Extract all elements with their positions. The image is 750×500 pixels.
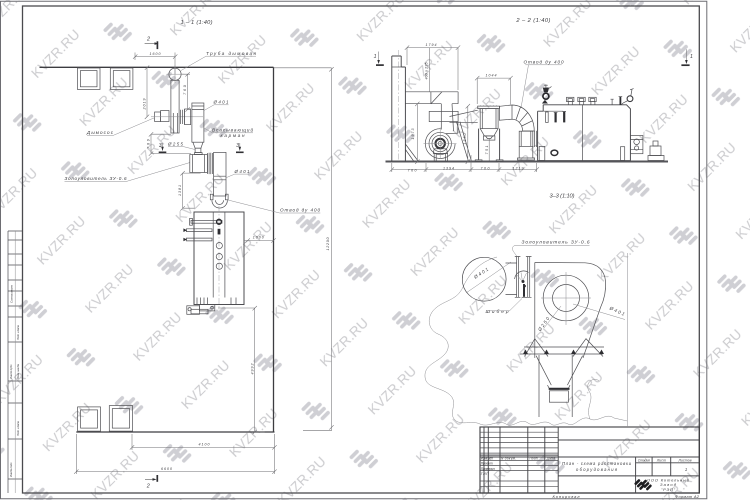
- svg-text:Ø255: Ø255: [167, 141, 184, 146]
- svg-text:Инв.№ подл.: Инв.№ подл.: [9, 462, 13, 477]
- svg-text:751: 751: [485, 146, 489, 155]
- svg-text:3: 3: [236, 143, 239, 149]
- svg-text:План - схема расстановки: План - схема расстановки: [562, 461, 632, 466]
- svg-text:Золоуловитель ЗУ-0.6: Золоуловитель ЗУ-0.6: [522, 240, 590, 246]
- svg-text:1394: 1394: [443, 166, 454, 170]
- svg-text:Дымосос: Дымосос: [86, 130, 114, 135]
- svg-text:"РЭП": "РЭП": [661, 487, 676, 492]
- svg-text:Листов: Листов: [678, 458, 692, 462]
- svg-text:ГИП: ГИП: [481, 472, 490, 476]
- svg-text:Инв.№ дубл.: Инв.№ дубл.: [9, 364, 13, 379]
- svg-text:1973: 1973: [411, 129, 415, 140]
- svg-text:Дата: Дата: [546, 456, 556, 460]
- svg-text:Шибер: Шибер: [486, 309, 509, 315]
- svg-text:700: 700: [481, 166, 490, 170]
- svg-text:Формат А2: Формат А2: [675, 494, 700, 499]
- svg-text:400 х 235: 400 х 235: [424, 63, 428, 80]
- svg-text:4992: 4992: [250, 364, 254, 375]
- svg-text:Согласовано: Согласовано: [10, 285, 14, 303]
- svg-text:Отвод ду 400: Отвод ду 400: [524, 59, 564, 64]
- svg-text:1219: 1219: [513, 166, 524, 170]
- svg-text:1044: 1044: [486, 74, 497, 78]
- svg-text:Ø401: Ø401: [213, 100, 230, 105]
- svg-text:1: 1: [374, 54, 377, 60]
- svg-text:1: 1: [690, 54, 693, 60]
- svg-text:Подп. и дата: Подп. и дата: [16, 421, 20, 436]
- svg-text:12200: 12200: [326, 238, 330, 251]
- svg-text:1000: 1000: [253, 236, 264, 240]
- svg-text:1550: 1550: [463, 134, 467, 145]
- svg-text:N докум.: N докум.: [501, 456, 516, 460]
- svg-text:1: 1: [685, 467, 687, 472]
- svg-text:4100: 4100: [199, 443, 210, 447]
- svg-text:карман: карман: [221, 133, 245, 138]
- svg-text:Подп.: Подп.: [530, 456, 539, 460]
- svg-text:Лист: Лист: [485, 456, 493, 460]
- svg-text:Взам. инв.№: Взам. инв.№: [16, 364, 20, 379]
- svg-text:Проект: Проект: [481, 462, 493, 466]
- svg-text:Отвод ду 400: Отвод ду 400: [280, 207, 320, 212]
- svg-text:2: 2: [146, 37, 150, 43]
- svg-text:2: 2: [146, 484, 150, 490]
- svg-text:3: 3: [159, 143, 162, 149]
- svg-text:1 – 1 (1:40): 1 – 1 (1:40): [181, 20, 213, 26]
- svg-text:709: 709: [147, 139, 151, 149]
- svg-text:оборудования: оборудования: [576, 467, 618, 472]
- svg-text:Золоуловитель ЗУ-0.6: Золоуловитель ЗУ-0.6: [65, 176, 127, 181]
- svg-text:Проверил: Проверил: [481, 467, 495, 471]
- svg-text:3–3 (1:10): 3–3 (1:10): [550, 193, 575, 199]
- svg-text:Всасывающий: Всасывающий: [212, 127, 253, 133]
- svg-text:1381: 1381: [178, 185, 182, 196]
- svg-text:1600: 1600: [150, 52, 161, 56]
- svg-text:2019: 2019: [143, 99, 147, 111]
- svg-text:Лист: Лист: [656, 458, 666, 462]
- svg-text:760: 760: [183, 85, 187, 95]
- svg-text:Подп. и дата: Подп. и дата: [16, 325, 20, 340]
- svg-text:2 – 2 (1:40): 2 – 2 (1:40): [515, 18, 550, 24]
- svg-text:760: 760: [408, 169, 417, 173]
- svg-text:Стадия: Стадия: [638, 458, 650, 462]
- svg-text:Ø401: Ø401: [234, 169, 251, 174]
- svg-text:Копировал: Копировал: [553, 494, 581, 499]
- svg-text:1794: 1794: [426, 43, 437, 47]
- svg-text:6600: 6600: [161, 467, 172, 471]
